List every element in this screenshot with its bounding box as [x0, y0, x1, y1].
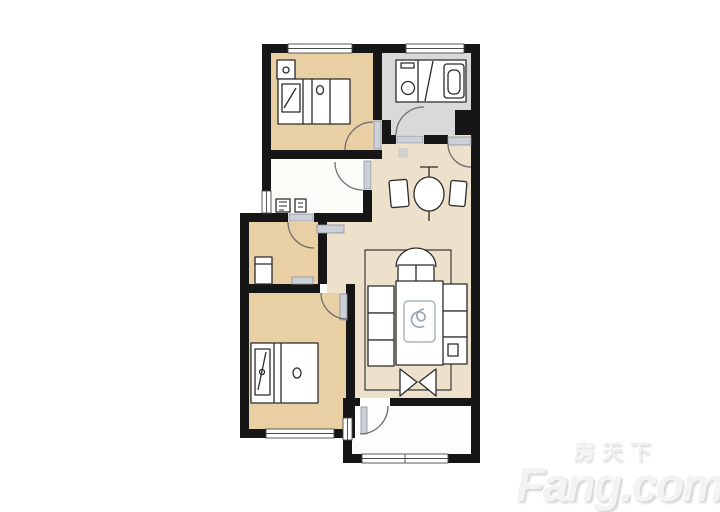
dining-chair-right [449, 180, 467, 206]
wall-bathroom-left-lower [382, 120, 391, 135]
sofa-cushion-left-3 [368, 340, 394, 366]
bathroom-fixtures [396, 60, 466, 102]
wall-bedroom-top-bottom [262, 150, 382, 159]
sink-icon [295, 199, 306, 212]
door-panel-balcony [361, 407, 367, 434]
sofa-cushion-right-3 [441, 337, 467, 364]
sofa-cushion-left-2 [368, 313, 394, 340]
wall-living-bottom-left [343, 398, 360, 406]
window-balcony-side [343, 418, 352, 440]
wall-balcony-bottom-right [448, 454, 480, 463]
bedroom-bottom-furniture [251, 343, 318, 403]
wall-bedroom-bottom-left [240, 429, 266, 438]
wall-bedroom-bottom-top [240, 284, 320, 293]
window-bedroom-top [288, 44, 352, 53]
wall-bathroom-bottom-left [382, 135, 396, 144]
dining-table [414, 177, 444, 211]
wall-kitchen-right [363, 190, 372, 222]
window-bathroom [406, 44, 464, 53]
sofa-cushion-right-2 [441, 311, 467, 337]
sofa-cushion-right-1 [441, 284, 467, 311]
fridge-icon [255, 257, 272, 284]
wall-balcony-left-lower [343, 440, 352, 454]
window-bedroom-bottom [266, 429, 334, 438]
sofa-cushion-left-1 [368, 286, 394, 313]
wall-balcony-left-upper [343, 406, 352, 418]
wall-balcony-bottom-left [343, 454, 362, 463]
wall-corridor-corner [346, 284, 355, 293]
floorplan-image: 房天下 Fang.com [0, 0, 720, 512]
wall-bathroom-shaft [455, 110, 471, 135]
wall-living-bottom-right [390, 398, 471, 406]
window-balcony [362, 454, 448, 463]
balcony-floor [352, 406, 471, 454]
door-panel-bedroom-bottom [340, 294, 347, 320]
shelf-storage [292, 277, 313, 284]
wall-left-lower [240, 222, 249, 438]
wall-kitchen-bottom-left [240, 213, 288, 222]
door-panel-bathroom [397, 136, 423, 143]
floorplan-drawing [0, 0, 720, 512]
wall-right [471, 44, 480, 463]
shelf-corridor [317, 225, 344, 233]
coffee-table-tray [404, 301, 435, 342]
storage-furniture [255, 257, 272, 284]
toilet-icon [444, 64, 464, 98]
hall-side-floor [372, 159, 382, 222]
bed-pillow-bottom [255, 349, 270, 395]
window-kitchen [262, 191, 271, 213]
floor-drain-marker [399, 149, 407, 157]
door-panel-entry [448, 137, 471, 145]
door-panel-bedroom-top [374, 121, 381, 149]
wall-bedroom-bathroom-divider [373, 44, 382, 120]
door-panel-storage [289, 214, 313, 221]
wall-left-upper [262, 53, 271, 191]
wall-bathroom-bottom-right [424, 135, 448, 144]
dining-chair-left [389, 179, 409, 207]
door-panel-kitchen [364, 161, 371, 189]
nightstand [277, 60, 295, 79]
